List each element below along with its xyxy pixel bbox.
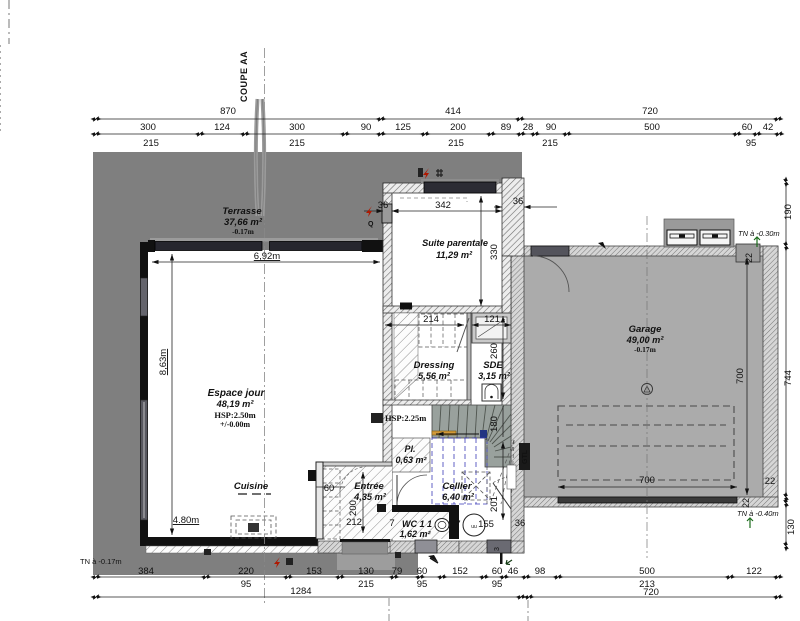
- svg-text:22: 22: [765, 476, 776, 487]
- svg-text:89: 89: [501, 122, 512, 133]
- svg-text:Cellier: Cellier: [442, 481, 472, 492]
- svg-text:95: 95: [746, 138, 757, 149]
- svg-text:60: 60: [492, 566, 503, 577]
- svg-text:Terrasse: Terrasse: [222, 206, 262, 217]
- svg-text:130: 130: [786, 519, 797, 535]
- svg-text:36: 36: [378, 200, 389, 211]
- svg-text:28: 28: [523, 122, 534, 133]
- svg-text:215: 215: [358, 579, 374, 590]
- svg-text:46: 46: [508, 566, 519, 577]
- svg-text:155: 155: [478, 519, 494, 530]
- svg-text:-0.17m: -0.17m: [232, 227, 255, 236]
- svg-text:215: 215: [289, 138, 305, 149]
- svg-text:42: 42: [763, 122, 774, 133]
- svg-text:90: 90: [546, 122, 557, 133]
- svg-text:342: 342: [435, 200, 451, 211]
- svg-text:7: 7: [455, 519, 460, 530]
- svg-text:79: 79: [392, 566, 403, 577]
- svg-text:200: 200: [348, 500, 359, 516]
- svg-text:180: 180: [489, 416, 500, 432]
- svg-text:3,15 m²: 3,15 m²: [478, 371, 511, 381]
- svg-text:152: 152: [452, 566, 468, 577]
- svg-text:121: 121: [484, 314, 500, 325]
- svg-text:220: 220: [238, 566, 254, 577]
- svg-text:215: 215: [143, 138, 159, 149]
- svg-text:90: 90: [361, 122, 372, 133]
- svg-text:500: 500: [639, 566, 655, 577]
- svg-text:153: 153: [306, 566, 322, 577]
- svg-text:60: 60: [417, 566, 428, 577]
- svg-text:48,19 m²: 48,19 m²: [216, 399, 255, 409]
- svg-text:+/-0.00m: +/-0.00m: [220, 420, 250, 429]
- svg-text:49,00 m²: 49,00 m²: [626, 335, 665, 345]
- svg-text:190: 190: [783, 204, 794, 220]
- svg-text:60: 60: [324, 483, 335, 494]
- svg-text:4.80m: 4.80m: [173, 515, 199, 526]
- svg-text:1284: 1284: [290, 586, 311, 597]
- svg-text:60: 60: [742, 122, 753, 133]
- svg-text:HSP:2.50m: HSP:2.50m: [214, 410, 255, 420]
- svg-text:WC 1 1: WC 1 1: [402, 519, 432, 529]
- svg-text:744: 744: [783, 370, 794, 386]
- svg-text:700: 700: [639, 475, 655, 486]
- svg-text:330: 330: [489, 244, 500, 260]
- svg-text:COUPE AA: COUPE AA: [239, 51, 249, 102]
- svg-text:uu: uu: [471, 524, 477, 530]
- svg-text:214: 214: [423, 314, 439, 325]
- svg-text:130: 130: [358, 566, 374, 577]
- svg-text:200: 200: [450, 122, 466, 133]
- svg-text:22: 22: [744, 253, 754, 263]
- svg-text:SDE: SDE: [483, 360, 503, 371]
- svg-text:Cuisine: Cuisine: [234, 481, 269, 492]
- svg-text:720: 720: [642, 106, 658, 117]
- svg-text:Entrée: Entrée: [354, 481, 384, 492]
- svg-text:0,63 m²: 0,63 m²: [395, 455, 427, 465]
- svg-text:300: 300: [140, 122, 156, 133]
- svg-text:201: 201: [489, 496, 500, 512]
- svg-text:6,92m: 6,92m: [254, 251, 280, 262]
- svg-text:6,40 m²: 6,40 m²: [442, 492, 475, 502]
- svg-text:95: 95: [492, 579, 503, 590]
- svg-text:36: 36: [513, 196, 524, 207]
- svg-text:215: 215: [542, 138, 558, 149]
- svg-text:Dressing: Dressing: [414, 360, 455, 371]
- svg-text:414: 414: [445, 106, 461, 117]
- svg-text:122: 122: [746, 566, 762, 577]
- svg-text:5,56 m²: 5,56 m²: [418, 371, 451, 381]
- svg-text:8,63m: 8,63m: [158, 349, 169, 375]
- svg-text:22: 22: [741, 498, 751, 508]
- svg-text:500: 500: [644, 122, 660, 133]
- svg-text:260: 260: [489, 343, 500, 359]
- svg-text:36: 36: [515, 518, 526, 529]
- svg-text:870: 870: [220, 106, 236, 117]
- svg-text:700: 700: [735, 368, 746, 384]
- svg-text:3: 3: [494, 547, 501, 551]
- svg-text:Pl.: Pl.: [404, 444, 415, 454]
- svg-text:Suite parentale: Suite parentale: [422, 238, 488, 248]
- svg-text:95: 95: [241, 579, 252, 590]
- svg-text:212: 212: [346, 517, 362, 528]
- svg-text:384: 384: [138, 566, 154, 577]
- svg-text:-0.17m: -0.17m: [634, 345, 657, 354]
- svg-text:TN à -0.30m: TN à -0.30m: [738, 229, 780, 238]
- svg-text:1,62 m²: 1,62 m²: [399, 529, 431, 539]
- svg-text:7: 7: [389, 518, 394, 529]
- svg-text:215: 215: [448, 138, 464, 149]
- svg-text:HSP:2.25m: HSP:2.25m: [385, 413, 426, 423]
- svg-text:TN à -0.17m: TN à -0.17m: [80, 557, 122, 566]
- svg-text:98: 98: [535, 566, 546, 577]
- svg-text:11,29 m²: 11,29 m²: [436, 250, 473, 260]
- svg-text:300: 300: [289, 122, 305, 133]
- svg-text:Garage: Garage: [629, 324, 662, 335]
- svg-text:Q: Q: [368, 221, 374, 228]
- svg-text:124: 124: [214, 122, 230, 133]
- svg-text:Espace jour: Espace jour: [208, 388, 266, 399]
- svg-text:720: 720: [643, 587, 659, 598]
- svg-text:95: 95: [417, 579, 428, 590]
- svg-text:TN à -0.40m: TN à -0.40m: [737, 509, 779, 518]
- svg-text:125: 125: [395, 122, 411, 133]
- svg-text:GTL: GTL: [522, 449, 529, 464]
